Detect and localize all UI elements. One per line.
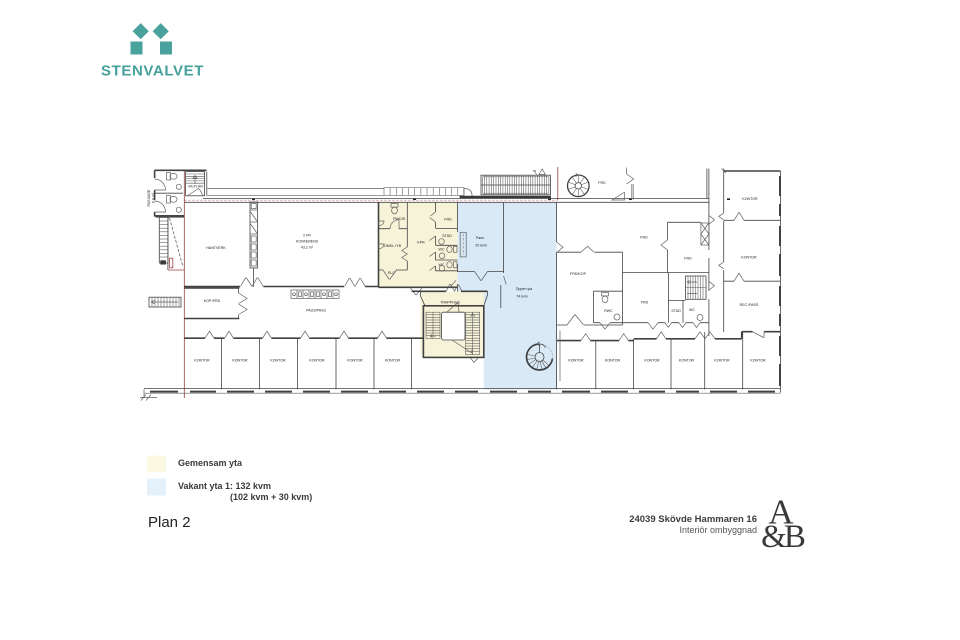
svg-text:FRD/KOP: FRD/KOP bbox=[570, 272, 587, 276]
svg-text:FRD: FRD bbox=[641, 301, 649, 305]
svg-text:TRAPPHUS: TRAPPHUS bbox=[440, 301, 460, 305]
svg-text:KONTOR: KONTOR bbox=[714, 359, 730, 363]
svg-text:FRD: FRD bbox=[640, 236, 648, 240]
svg-text:KONTOR: KONTOR bbox=[347, 359, 363, 363]
svg-text:KONTOR: KONTOR bbox=[232, 359, 248, 363]
svg-text:6,9 m²: 6,9 m² bbox=[152, 192, 156, 203]
svg-text:KONTOR: KONTOR bbox=[194, 359, 210, 363]
svg-text:PAUS/PASS: PAUS/PASS bbox=[306, 309, 326, 313]
svg-text:PASSAGE: PASSAGE bbox=[147, 189, 151, 207]
svg-text:KOP./FRD: KOP./FRD bbox=[204, 299, 221, 303]
svg-text:Plan 2: Plan 2 bbox=[148, 514, 191, 531]
svg-text:20 kvm: 20 kvm bbox=[475, 244, 487, 248]
svg-text:WC: WC bbox=[439, 248, 445, 252]
svg-text:REC./PASS: REC./PASS bbox=[740, 303, 760, 307]
svg-text:STÄD: STÄD bbox=[671, 309, 681, 313]
svg-text:43,2 m²: 43,2 m² bbox=[301, 246, 314, 250]
svg-text:KONTOR: KONTOR bbox=[644, 359, 660, 363]
svg-text:KONTOR: KONTOR bbox=[270, 359, 286, 363]
svg-text:RWC: RWC bbox=[604, 309, 613, 313]
svg-text:KONTOR: KONTOR bbox=[309, 359, 325, 363]
svg-text:FRD: FRD bbox=[444, 218, 452, 222]
svg-text:(102 kvm + 30 kvm): (102 kvm + 30 kvm) bbox=[230, 492, 312, 502]
svg-text:Vakant yta 1: 132 kvm: Vakant yta 1: 132 kvm bbox=[178, 481, 271, 491]
svg-text:KPR: KPR bbox=[417, 241, 425, 245]
svg-text:KONTOR: KONTOR bbox=[742, 197, 758, 201]
svg-text:74 kvm: 74 kvm bbox=[516, 295, 528, 299]
svg-text:Öppen yta: Öppen yta bbox=[516, 287, 533, 291]
svg-text:KONTOR: KONTOR bbox=[568, 359, 584, 363]
svg-text:&B: &B bbox=[761, 519, 805, 555]
svg-text:ELC: ELC bbox=[388, 271, 395, 275]
svg-text:STÄD: STÄD bbox=[442, 234, 452, 238]
svg-text:KONTOR: KONTOR bbox=[741, 256, 757, 260]
svg-text:KONTOR: KONTOR bbox=[385, 359, 401, 363]
svg-text:KONTOR: KONTOR bbox=[750, 359, 766, 363]
svg-text:VILPLAN: VILPLAN bbox=[188, 185, 203, 189]
svg-text:OMKL./YB: OMKL./YB bbox=[384, 244, 402, 248]
svg-text:FRD: FRD bbox=[598, 181, 606, 185]
svg-text:PWC/B: PWC/B bbox=[393, 217, 405, 221]
svg-text:KONTOR: KONTOR bbox=[605, 359, 621, 363]
svg-text:STENVALVET: STENVALVET bbox=[101, 63, 204, 80]
svg-text:Interiör ombyggnad: Interiör ombyggnad bbox=[679, 525, 757, 535]
svg-text:KONTOR: KONTOR bbox=[679, 359, 695, 363]
svg-text:Paus: Paus bbox=[476, 236, 484, 240]
svg-text:2 FR: 2 FR bbox=[303, 234, 311, 238]
svg-text:HANTVERK: HANTVERK bbox=[206, 246, 226, 250]
svg-text:WC: WC bbox=[689, 308, 695, 312]
svg-text:FRD: FRD bbox=[684, 257, 692, 261]
svg-text:Gemensam yta: Gemensam yta bbox=[178, 458, 243, 468]
svg-text:24039 Skövde Hammaren 16: 24039 Skövde Hammaren 16 bbox=[629, 514, 757, 525]
svg-text:KONFERENS: KONFERENS bbox=[296, 240, 319, 244]
